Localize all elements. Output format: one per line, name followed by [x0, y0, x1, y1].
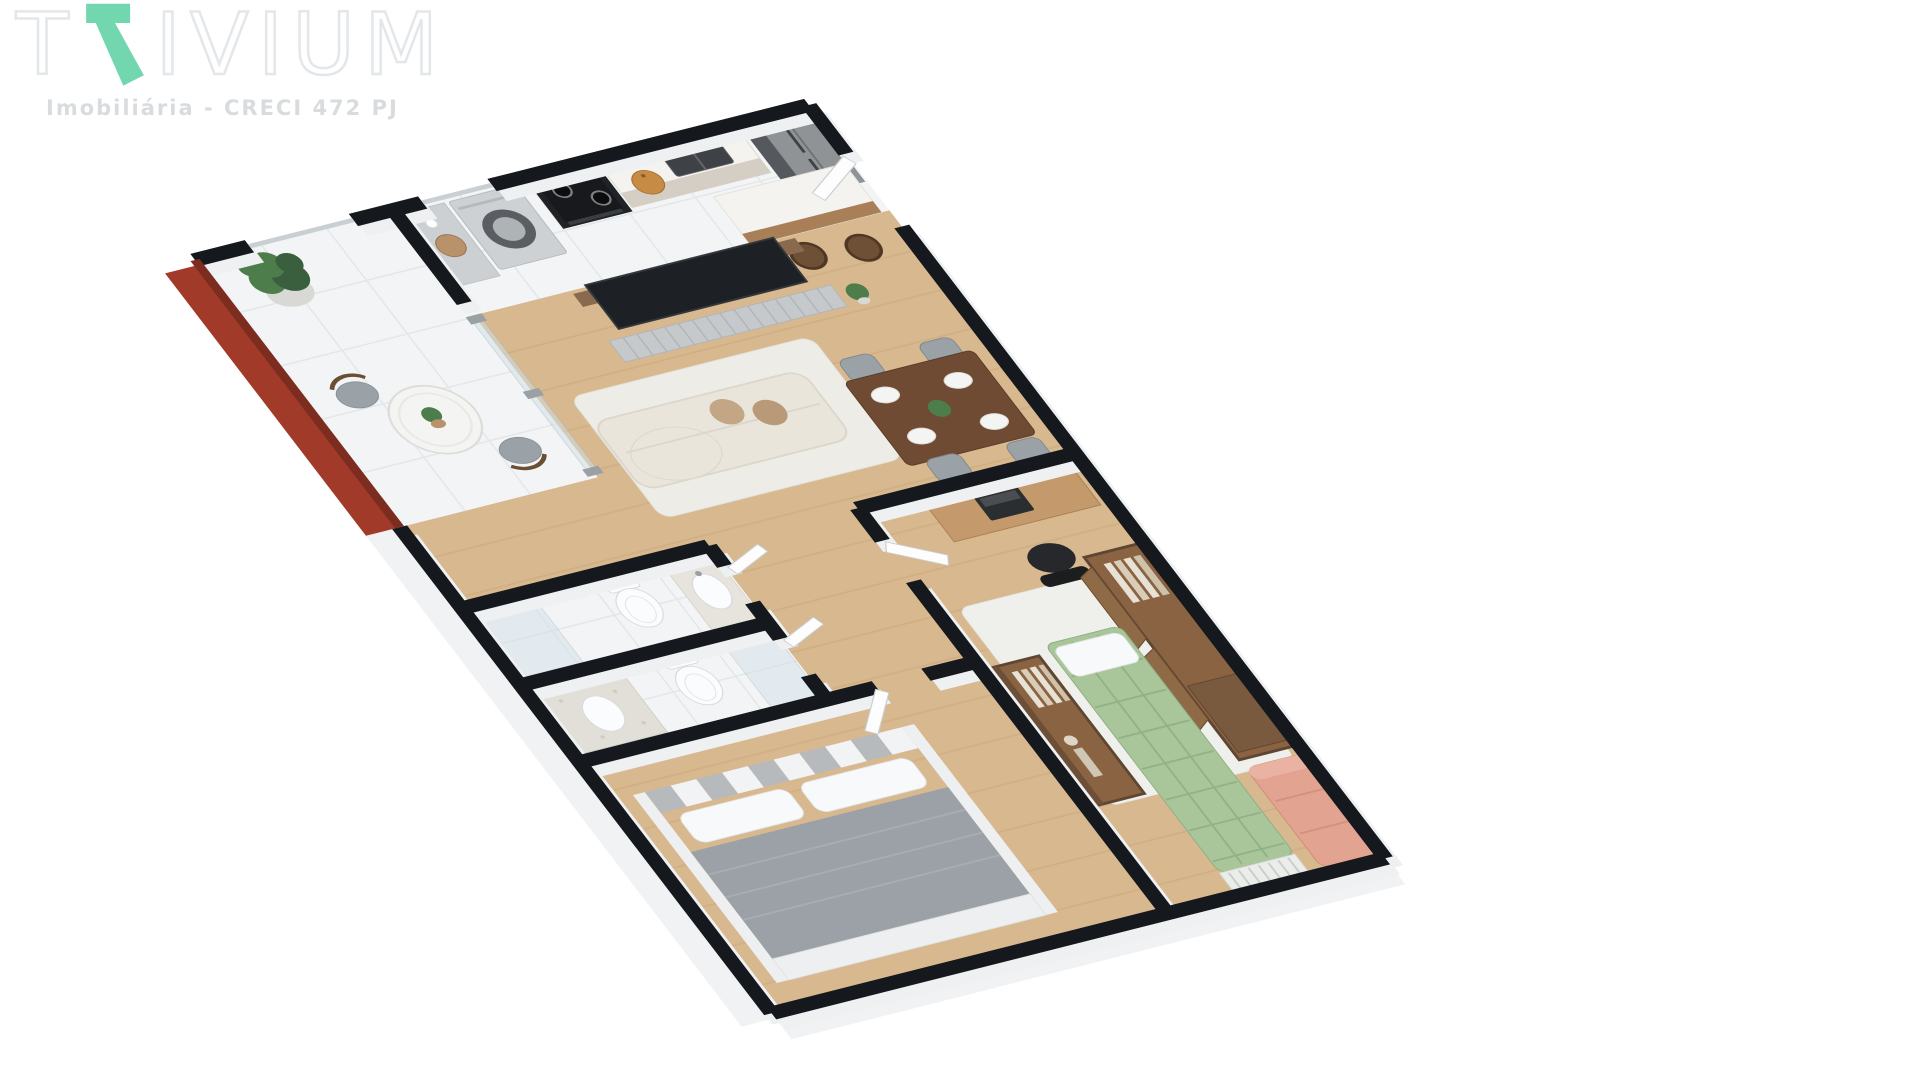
logo-letters-ivium: IVIUM [156, 2, 448, 88]
brand-logo: T IVIUM Imobiliária - CRECI 472 PJ [16, 2, 447, 120]
logo-letter-t: T [16, 2, 78, 88]
floor-plan-render [0, 0, 1920, 1080]
page: T IVIUM Imobiliária - CRECI 472 PJ [0, 0, 1920, 1080]
logo-wordmark: T IVIUM [16, 2, 447, 88]
logo-r-arrow-icon [82, 3, 148, 87]
brand-subtitle: Imobiliária - CRECI 472 PJ [46, 96, 447, 120]
